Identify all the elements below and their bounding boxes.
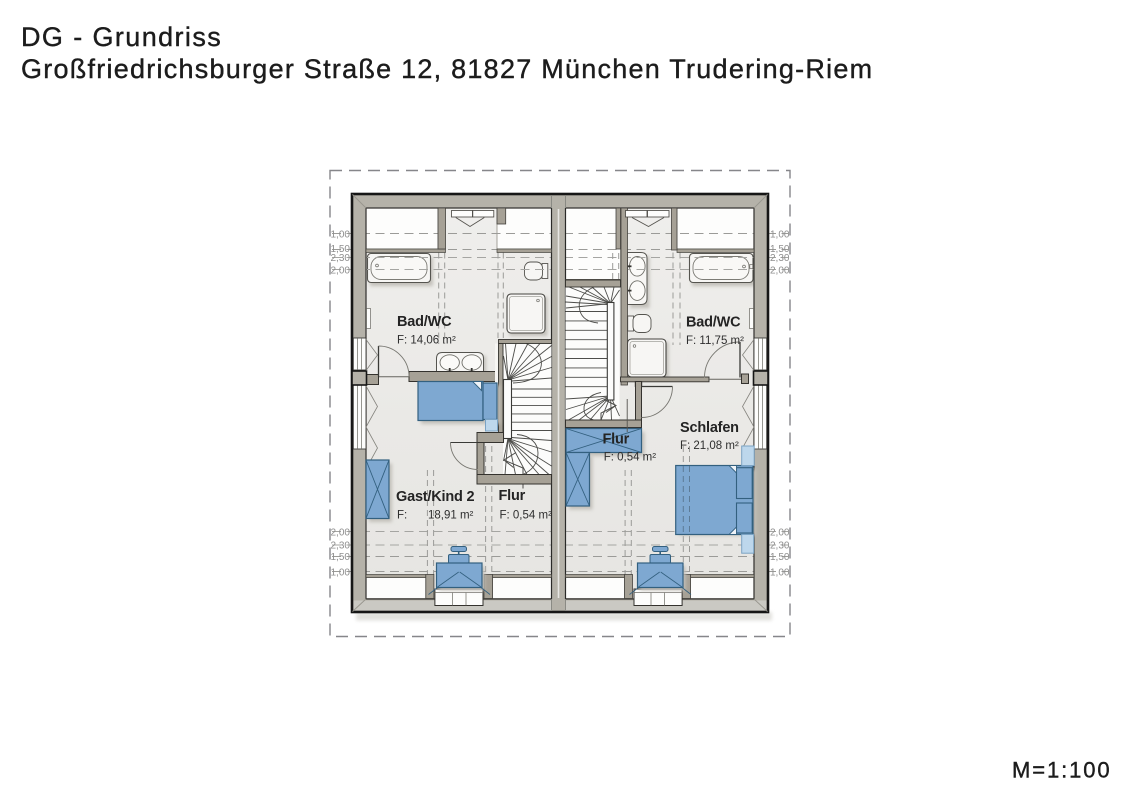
svg-text:Gast/Kind 2: Gast/Kind 2	[396, 489, 475, 505]
svg-text:M=1:100: M=1:100	[1012, 758, 1112, 783]
svg-text:Bad/WC: Bad/WC	[686, 315, 741, 331]
svg-text:F: 11,75 m²: F: 11,75 m²	[686, 335, 744, 347]
svg-text:2,30: 2,30	[331, 541, 351, 552]
svg-text:1,50: 1,50	[770, 552, 790, 563]
svg-text:18,91 m²: 18,91 m²	[428, 510, 474, 522]
svg-text:Großfriedrichsburger Straße 12: Großfriedrichsburger Straße 12, 81827 Mü…	[21, 54, 873, 84]
svg-text:F:: F:	[397, 510, 407, 522]
svg-text:1,50: 1,50	[331, 552, 351, 563]
svg-text:Bad/WC: Bad/WC	[397, 314, 452, 330]
svg-text:1,00: 1,00	[331, 230, 351, 241]
svg-text:1,00: 1,00	[331, 568, 351, 579]
svg-text:1,00: 1,00	[770, 230, 790, 241]
svg-text:2,30: 2,30	[770, 253, 790, 264]
svg-text:2,30: 2,30	[331, 253, 351, 264]
svg-text:F: 14,06 m²: F: 14,06 m²	[397, 335, 456, 347]
svg-text:F: 21,08 m²: F: 21,08 m²	[680, 440, 739, 452]
svg-text:2,00: 2,00	[770, 266, 790, 277]
svg-text:F: 0,54 m²: F: 0,54 m²	[604, 452, 657, 464]
svg-text:F: 0,54 m²: F: 0,54 m²	[500, 510, 553, 522]
svg-text:Schlafen: Schlafen	[680, 420, 739, 436]
svg-text:2,30: 2,30	[770, 541, 790, 552]
svg-text:DG - Grundriss: DG - Grundriss	[21, 22, 222, 52]
svg-text:2,00: 2,00	[331, 266, 351, 277]
svg-text:2,00: 2,00	[331, 528, 351, 539]
svg-text:1,00: 1,00	[770, 568, 790, 579]
svg-text:Flur: Flur	[499, 488, 526, 504]
svg-text:2,00: 2,00	[770, 528, 790, 539]
svg-text:Flur: Flur	[603, 432, 630, 448]
